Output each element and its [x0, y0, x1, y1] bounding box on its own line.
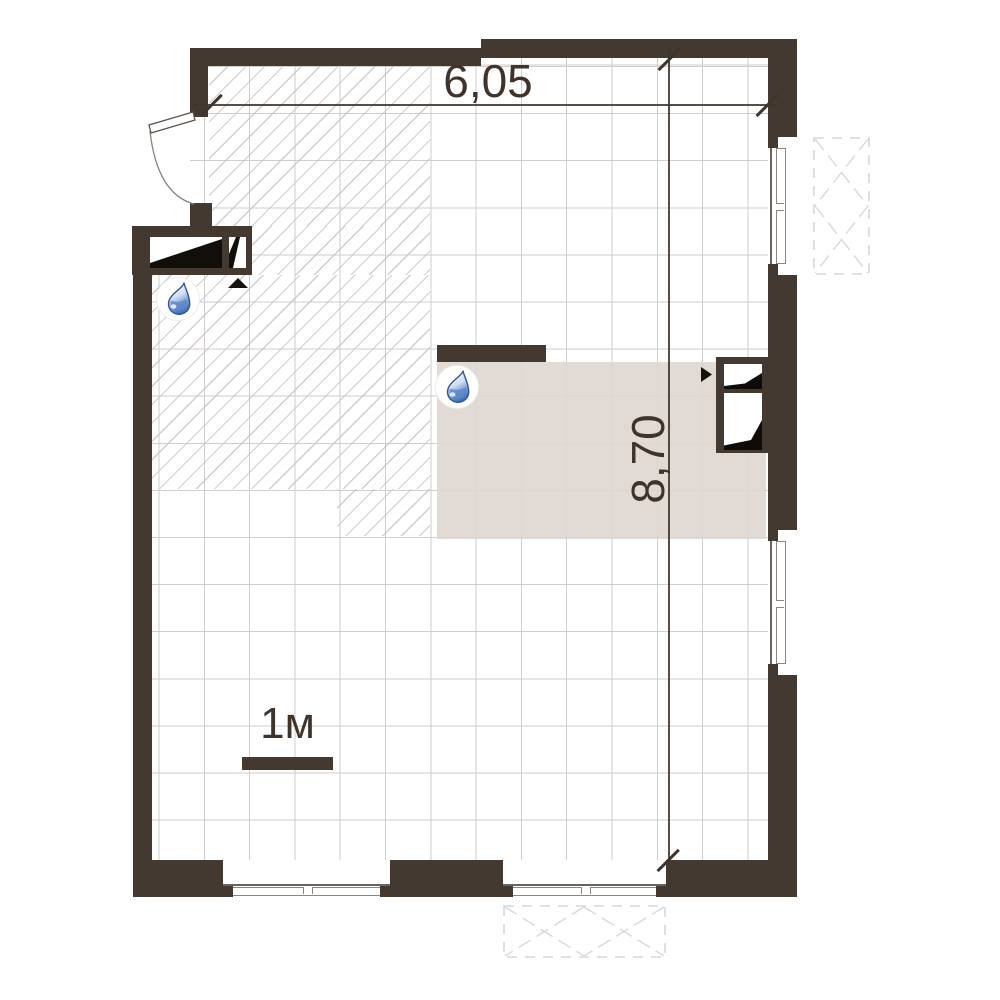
- wall-right-lower: [768, 675, 797, 860]
- water-drop-icon: [156, 277, 200, 321]
- floor-plan-canvas: 6,05 8,70 1м: [0, 0, 1000, 1000]
- door-swing-arc: [150, 131, 194, 204]
- dimension-label-height: 8,70: [626, 374, 670, 544]
- window-jamb-tab: [768, 664, 778, 675]
- window-bottom-right: [503, 860, 666, 897]
- window-right-lower: [768, 530, 797, 675]
- window-jamb-tab: [503, 886, 513, 897]
- window-mullion: [581, 887, 591, 894]
- window-jamb-tab: [223, 886, 233, 897]
- window-jamb-tab: [768, 530, 778, 541]
- door-leaf: [149, 112, 195, 133]
- window-mullion: [303, 887, 313, 894]
- tiled-zone-hatch: [252, 226, 430, 275]
- window-inner-face-line: [770, 137, 772, 275]
- vent-shaft-icon: [700, 357, 797, 454]
- window-inner-face-line: [503, 884, 666, 886]
- window-inner-face-line: [770, 530, 772, 675]
- window-bottom-left: [223, 860, 390, 897]
- window-jamb-tab: [768, 137, 778, 148]
- triangle-marker-icon: [701, 367, 712, 382]
- window-right-upper: [768, 137, 797, 275]
- window-jamb-tab: [768, 264, 778, 275]
- wall-bottom-left: [133, 860, 223, 897]
- window-jamb-tab: [380, 886, 390, 897]
- scale-label: 1м: [240, 702, 335, 746]
- window-inner-face-line: [223, 884, 390, 886]
- tiled-zone-hatch: [209, 66, 430, 226]
- water-drop-icon: [435, 365, 479, 409]
- window-mullion: [776, 203, 784, 211]
- wall-left: [133, 275, 152, 860]
- kitchen-partition-stub: [437, 345, 546, 362]
- window-jamb-tab: [656, 886, 666, 897]
- wall-bottom-right: [666, 860, 797, 897]
- triangle-marker-icon: [228, 278, 248, 288]
- dashed-x-box-icon: [813, 137, 870, 275]
- window-mullion: [776, 600, 784, 608]
- scale-bar: [242, 757, 333, 770]
- tiled-zone-hatch: [337, 489, 430, 536]
- dimension-label-width: 6,05: [413, 58, 563, 104]
- wall-bottom-middle: [390, 860, 503, 897]
- dashed-x-box-icon: [503, 905, 666, 958]
